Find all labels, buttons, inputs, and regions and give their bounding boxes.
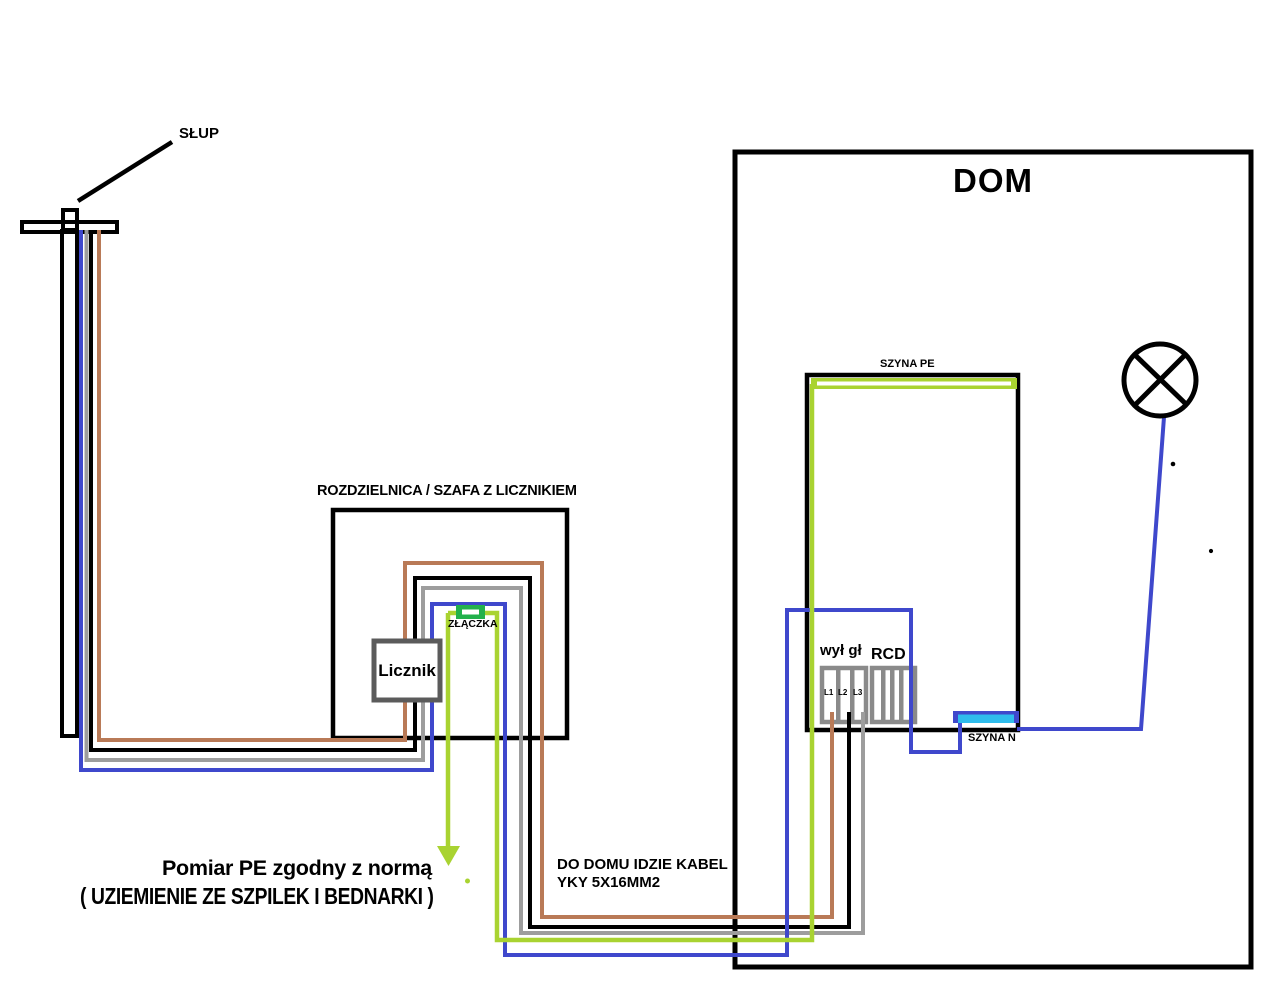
ink-dot (1171, 462, 1176, 467)
connector-zlaczka (456, 605, 485, 619)
connector-label: ZŁĄCZKA (448, 619, 498, 630)
wire-lamp-blue (1017, 417, 1164, 729)
cable-note-line1: DO DOMU IDZIE KABEL (557, 857, 728, 873)
cell-l1-label: L1 (824, 688, 833, 697)
cable-note-line2: YKY 5X16MM2 (557, 875, 660, 891)
wire-phase-l3-gray (87, 230, 864, 933)
electrical-diagram: SŁUP DOM ROZDZIELNICA / SZAFA Z LICZNIKI… (0, 0, 1280, 984)
cell-l2-label: L2 (838, 688, 847, 697)
main-switch-label: wył gł (820, 643, 862, 659)
pe-note-title: Pomiar PE zgodny z normą (162, 857, 432, 880)
rcd-box (872, 668, 915, 722)
wire-phase-l1-brown (99, 230, 832, 917)
lamp-icon (1124, 344, 1196, 416)
rcd-divider (881, 670, 886, 720)
ink-dot (1209, 549, 1213, 553)
house-title: DOM (735, 164, 1251, 199)
pe-bus-bar (811, 378, 1017, 389)
rcd-label: RCD (871, 647, 906, 664)
n-bus-bar (953, 711, 1019, 723)
cabinet-label: ROZDZIELNICA / SZAFA Z LICZNIKIEM (317, 484, 577, 499)
cell-l3-label: L3 (853, 688, 862, 697)
n-bus-label: SZYNA N (968, 733, 1016, 745)
pe-bus-label: SZYNA PE (880, 359, 935, 371)
pe-note-subtitle: ( UZIEMIENIE ZE SZPILEK I BEDNARKI ) (80, 884, 434, 909)
rcd-divider (890, 670, 895, 720)
earth-ink-dot (465, 879, 470, 884)
pole-pointer-line (78, 142, 172, 201)
earth-arrow-icon (437, 846, 460, 866)
pole-label: SŁUP (179, 126, 219, 142)
pole-mast (62, 231, 77, 736)
diagram-drawing (0, 0, 1280, 984)
rcd-divider (899, 670, 904, 720)
meter-label: Licznik (374, 641, 440, 700)
